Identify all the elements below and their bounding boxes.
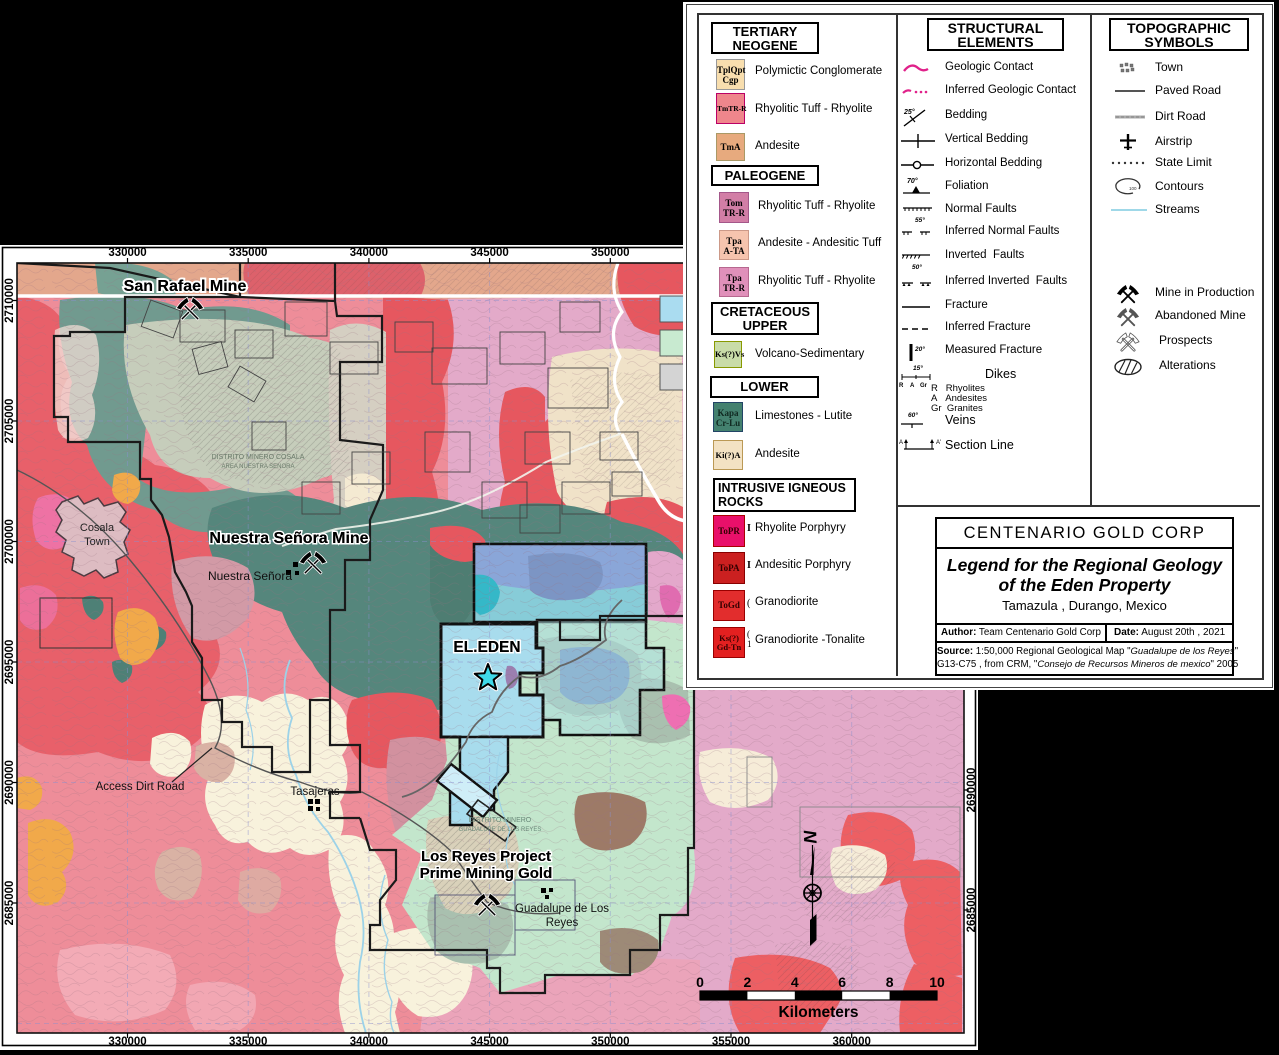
svg-text:Prime Mining Gold: Prime Mining Gold: [420, 865, 553, 882]
svg-text:2710000: 2710000: [4, 278, 16, 323]
svg-text:EL.EDEN: EL.EDEN: [453, 639, 520, 656]
svg-text:Cosala: Cosala: [80, 522, 115, 534]
svg-text:8: 8: [886, 974, 894, 990]
svg-text:Tasajeras: Tasajeras: [290, 786, 339, 798]
svg-text:A': A': [936, 440, 941, 446]
svg-text:2: 2: [744, 974, 752, 990]
svg-text:360000: 360000: [833, 1036, 871, 1048]
svg-text:DISTRITO MINERO: DISTRITO MINERO: [469, 817, 532, 824]
svg-text:345000: 345000: [470, 247, 508, 259]
svg-text:A: A: [910, 383, 915, 389]
svg-text:25°: 25°: [903, 108, 915, 116]
svg-text:2700000: 2700000: [4, 519, 16, 564]
svg-text:A: A: [899, 440, 903, 446]
svg-text:2705000: 2705000: [4, 399, 16, 444]
svg-text:350000: 350000: [591, 247, 629, 259]
svg-text:Gr: Gr: [920, 383, 928, 389]
svg-text:70°: 70°: [907, 177, 918, 185]
svg-text:50°: 50°: [912, 263, 922, 271]
svg-text:2685000: 2685000: [4, 881, 16, 926]
svg-text:350000: 350000: [591, 1036, 629, 1048]
svg-text:55°: 55°: [915, 216, 925, 224]
svg-text:100: 100: [1129, 186, 1137, 191]
svg-text:340000: 340000: [350, 247, 388, 259]
svg-text:330000: 330000: [108, 1036, 146, 1048]
svg-text:GUADALUPE DE LOS REYES: GUADALUPE DE LOS REYES: [459, 827, 542, 833]
svg-text:335000: 335000: [229, 1036, 267, 1048]
svg-text:2690000: 2690000: [966, 768, 978, 813]
svg-text:Nuestra Señora Mine: Nuestra Señora Mine: [209, 530, 368, 547]
svg-text:60°: 60°: [908, 411, 918, 419]
svg-text:6: 6: [838, 974, 846, 990]
svg-text:15°: 15°: [913, 364, 923, 372]
svg-text:R: R: [899, 383, 904, 389]
svg-text:345000: 345000: [470, 1036, 508, 1048]
svg-text:20°: 20°: [914, 345, 925, 353]
svg-text:4: 4: [791, 974, 799, 990]
svg-text:335000: 335000: [229, 247, 267, 259]
svg-text:2690000: 2690000: [4, 760, 16, 805]
svg-text:Reyes: Reyes: [546, 917, 579, 929]
svg-text:2695000: 2695000: [4, 640, 16, 685]
svg-text:Los Reyes Project: Los Reyes Project: [421, 848, 551, 865]
svg-text:San Rafael Mine: San Rafael Mine: [124, 278, 247, 295]
svg-text:Kilometers: Kilometers: [778, 1004, 858, 1021]
svg-text:340000: 340000: [350, 1036, 388, 1048]
svg-text:N: N: [800, 830, 820, 845]
svg-text:2685000: 2685000: [966, 888, 978, 933]
svg-text:330000: 330000: [108, 247, 146, 259]
svg-text:Guadalupe de Los: Guadalupe de Los: [515, 903, 609, 915]
svg-text:355000: 355000: [712, 1036, 750, 1048]
svg-text:Town: Town: [84, 536, 110, 548]
svg-text:10: 10: [929, 974, 945, 990]
svg-text:0: 0: [696, 974, 704, 990]
svg-text:Nuestra Señora: Nuestra Señora: [208, 569, 292, 583]
svg-text:Access Dirt Road: Access Dirt Road: [96, 781, 185, 793]
svg-text:AREA NUESTRA SENORA: AREA NUESTRA SENORA: [221, 464, 294, 470]
svg-text:DISTRITO MINERO COSALA: DISTRITO MINERO COSALA: [212, 454, 305, 461]
